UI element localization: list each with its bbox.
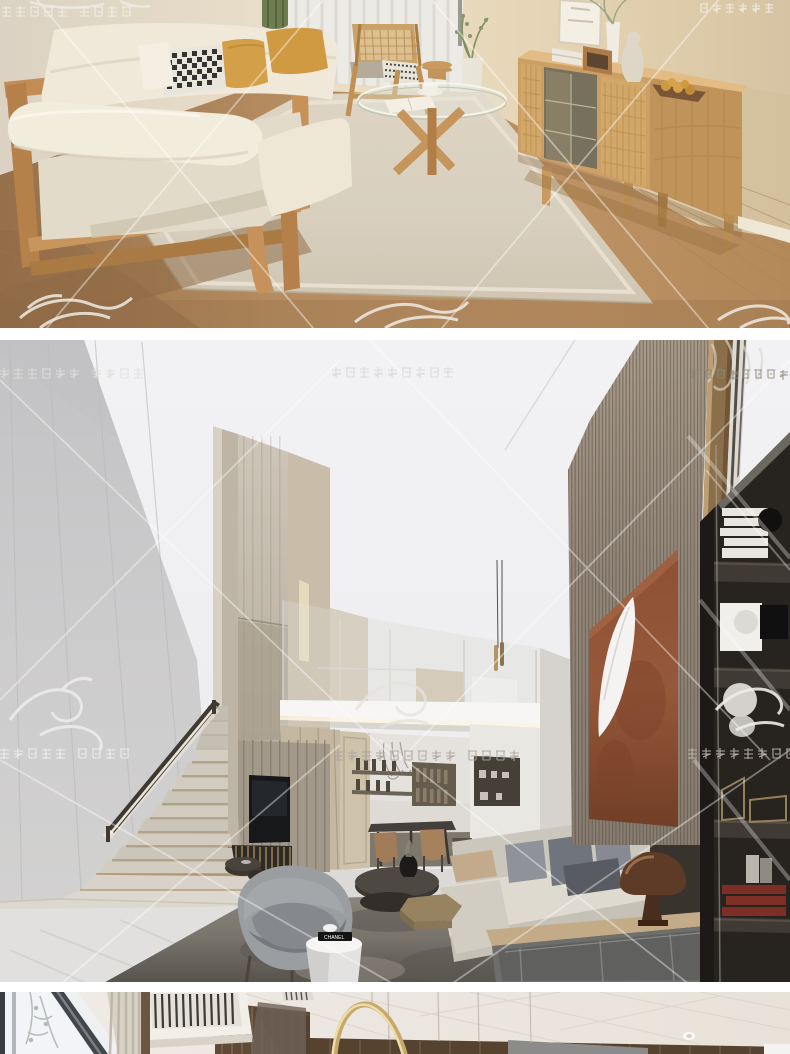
- svg-text:CHANEL: CHANEL: [324, 935, 345, 941]
